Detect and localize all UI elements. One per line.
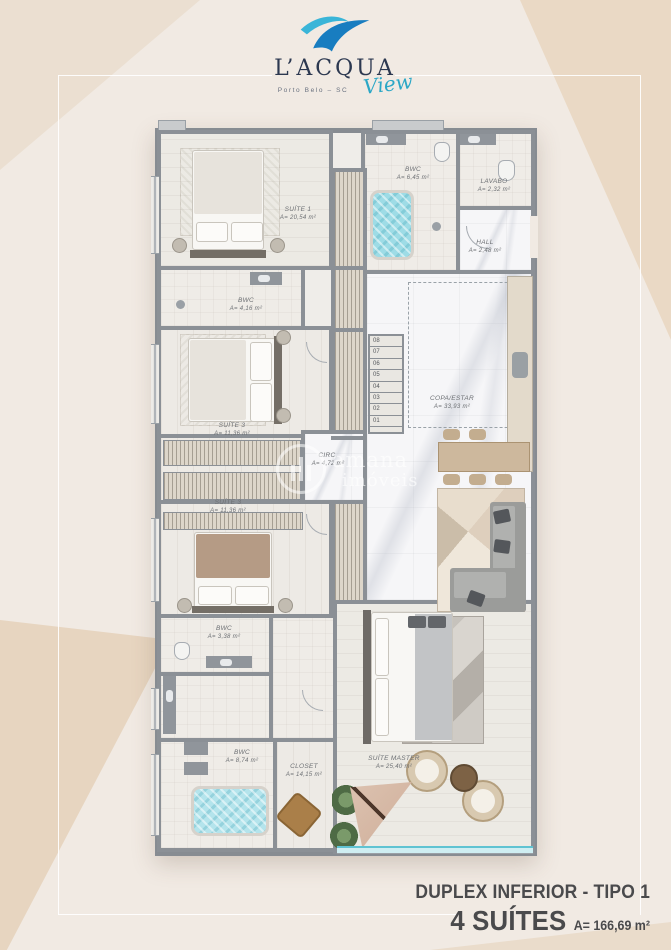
footer-suites: 4 SUÍTES: [450, 905, 566, 936]
glass-window-line: [337, 846, 533, 854]
room-name: BWC: [214, 748, 270, 757]
watermark-text-1: amana: [332, 448, 408, 472]
plan-footer: DUPLEX INFERIOR - TIPO 1 4 SUÍTESA= 166,…: [320, 882, 650, 937]
room-area: A= 33,93 m²: [416, 403, 488, 412]
nightstand: [270, 238, 285, 253]
bed-cushion: [408, 616, 426, 628]
room-label-suite3: SUÍTE 3 A= 11,36 m²: [196, 498, 260, 516]
bed-pillow: [375, 678, 389, 736]
wall-segment: [331, 328, 367, 332]
stair-step: 03: [370, 393, 402, 404]
bed-pillow: [196, 222, 228, 242]
bathtub: [191, 786, 269, 836]
room-name: COPA/ESTAR: [416, 394, 488, 403]
dining-table: [438, 442, 530, 472]
room-name: BWC: [388, 165, 438, 174]
dining-stool: [469, 474, 486, 485]
toilet: [174, 642, 190, 660]
entrance-door-gap: [530, 216, 538, 258]
room-area: A= 11,36 m²: [196, 507, 260, 516]
bathroom-counter: [163, 676, 176, 734]
bed-pillow: [250, 383, 272, 422]
vanity: [184, 742, 208, 755]
window: [151, 518, 159, 602]
kitchen-sink: [512, 352, 528, 378]
sofa-cushion: [493, 539, 511, 554]
stairs: 08 07 06 05 04 03 02 01: [368, 334, 404, 434]
watermark-logo-icon: [276, 444, 326, 494]
bed-blanket: [194, 152, 262, 214]
shower-drain: [176, 300, 185, 309]
bed-pillow: [375, 618, 389, 676]
bed-pillow: [198, 586, 232, 605]
brand-location: Porto Belo – SC: [263, 87, 363, 94]
sink: [468, 136, 480, 143]
watermark: amana imóveis: [276, 444, 416, 504]
side-table: [450, 764, 478, 792]
footer-title: DUPLEX INFERIOR - TIPO 1: [346, 882, 650, 904]
room-label-bwc3: BWC A= 8,74 m²: [214, 748, 270, 766]
room-area: A= 2,32 m²: [466, 186, 522, 195]
room-area: A= 14,15 m²: [274, 771, 334, 780]
room-label-bwc1: BWC A= 4,16 m²: [218, 296, 274, 314]
window: [151, 176, 159, 254]
sink: [376, 136, 388, 143]
background-shape-top-right: [520, 0, 671, 340]
nightstand: [172, 238, 187, 253]
room-name: SUÍTE 3: [200, 421, 264, 430]
room-area: A= 25,40 m²: [360, 763, 428, 772]
frame-line-left: [58, 75, 59, 915]
wall-segment: [331, 436, 367, 440]
room-area: A= 4,16 m²: [218, 305, 274, 314]
sink: [258, 275, 270, 282]
vanity: [184, 762, 208, 775]
bird-logo-icon: [296, 12, 374, 52]
room-label-suite2: SUÍTE 3 A= 11,36 m²: [200, 421, 264, 439]
stair-step: 01: [370, 416, 402, 427]
nightstand: [278, 598, 293, 613]
toilet: [434, 142, 450, 162]
stair-step: 08: [370, 336, 402, 347]
room-area: A= 8,74 m²: [214, 757, 270, 766]
room-vestibule: [269, 614, 337, 742]
room-name: LAVABO: [466, 177, 522, 186]
stair-step: 02: [370, 404, 402, 415]
room-name: SUÍTE 1: [266, 205, 330, 214]
window: [151, 688, 159, 730]
room-name: BWC: [196, 624, 252, 633]
bed-pillow: [231, 222, 263, 242]
nightstand: [276, 408, 291, 423]
nightstand: [276, 330, 291, 345]
window: [151, 754, 159, 836]
background-shape-bottom-left: [0, 620, 170, 950]
dining-stool: [469, 429, 486, 440]
lounge-chair-cushion: [471, 789, 495, 813]
bed-cushion: [428, 616, 446, 628]
watermark-text-2: imóveis: [342, 470, 418, 491]
room-label-copa: COPA/ESTAR A= 33,93 m²: [416, 394, 488, 412]
bed-pillow: [235, 586, 269, 605]
room-area: A= 2,48 m²: [452, 247, 518, 256]
dining-stool: [443, 474, 460, 485]
stair-step: 04: [370, 382, 402, 393]
bed-blanket: [196, 534, 270, 578]
room-label-bwc2: BWC A= 3,38 m²: [196, 624, 252, 642]
frame-line-right: [640, 75, 641, 915]
room-closet: [273, 738, 337, 852]
sink: [166, 690, 173, 702]
floor-plan-page: L’ACQUA Porto Belo – SC View: [0, 0, 671, 950]
room-label-bwc-top: BWC A= 6,45 m²: [388, 165, 438, 183]
bed-headboard: [192, 606, 274, 613]
dining-stool: [495, 474, 512, 485]
bed-pillow: [250, 342, 272, 381]
bed-headboard: [190, 250, 266, 258]
room-label-lavabo: LAVABO A= 2,32 m²: [466, 177, 522, 195]
shower-drain: [432, 222, 441, 231]
dining-stool: [443, 429, 460, 440]
room-name: BWC: [218, 296, 274, 305]
footer-subtitle: 4 SUÍTESA= 166,69 m²: [346, 905, 650, 937]
stair-step: 07: [370, 347, 402, 358]
logo: L’ACQUA Porto Belo – SC View: [235, 10, 435, 120]
stair-step: 06: [370, 359, 402, 370]
room-label-suite-master: SUÍTE MASTER A= 25,40 m²: [360, 754, 428, 772]
sink: [220, 659, 232, 666]
nightstand: [177, 598, 192, 613]
window: [151, 344, 159, 424]
bed-blanket: [415, 614, 452, 740]
footer-area: A= 166,69 m²: [574, 918, 650, 933]
room-area: A= 20,54 m²: [266, 214, 330, 223]
room-area: A= 11,36 m²: [200, 430, 264, 439]
room-name: SUÍTE MASTER: [360, 754, 428, 763]
wardrobe-strip-middle: [331, 168, 367, 622]
room-name: HALL: [452, 238, 518, 247]
room-area: A= 6,45 m²: [388, 174, 438, 183]
stair-step: 05: [370, 370, 402, 381]
room-name: CLOSET: [274, 762, 334, 771]
room-name: SUÍTE 3: [196, 498, 260, 507]
room-area: A= 3,38 m²: [196, 633, 252, 642]
jacuzzi: [370, 190, 414, 260]
room-label-hall: HALL A= 2,48 m²: [452, 238, 518, 256]
room-label-suite1: SUÍTE 1 A= 20,54 m²: [266, 205, 330, 223]
room-label-closet: CLOSET A= 14,15 m²: [274, 762, 334, 780]
wall-segment: [331, 266, 367, 270]
bed-headboard: [363, 610, 371, 744]
bed-blanket: [190, 340, 246, 420]
